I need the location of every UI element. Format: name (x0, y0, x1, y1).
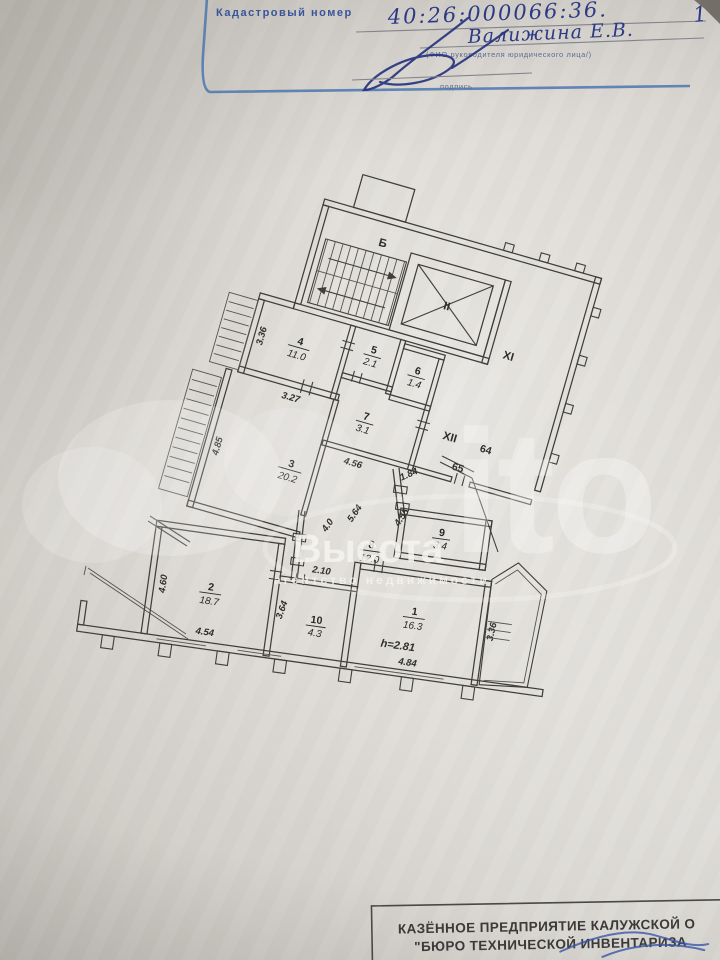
document-canvas: Кадастровый номер 40:26:000066:36. 1 Вал… (0, 0, 720, 960)
scanned-document-photo: Кадастровый номер 40:26:000066:36. 1 Вал… (0, 0, 720, 960)
hall-label: XI (501, 349, 515, 364)
balcony-room4 (209, 292, 258, 369)
svg-text:7: 7 (362, 410, 371, 423)
pilaster (158, 643, 172, 658)
avito-watermark-blob (224, 408, 356, 516)
door-mark (340, 340, 354, 350)
roof-tab (354, 175, 415, 223)
watermarks: ito Высота агентство недвижимости (22, 395, 675, 600)
door-mark (415, 420, 429, 430)
room5-bottom-wall (341, 373, 392, 392)
pilaster (215, 651, 229, 666)
svg-text:1.4: 1.4 (406, 377, 423, 392)
stairs-icon (308, 239, 407, 326)
svg-text:3.1: 3.1 (354, 423, 370, 437)
room-4-label: 4 11.0 (284, 333, 312, 364)
footer-block: КАЗЁННОЕ ПРЕДПРИЯТИЕ КАЛУЖСКОЙ О "БЮРО Т… (371, 900, 720, 960)
room-1-label: 1 16.3 (401, 605, 426, 634)
pilaster (273, 659, 287, 674)
stair-bottom-wall (293, 303, 489, 364)
svg-text:10: 10 (310, 614, 323, 628)
svg-text:5: 5 (369, 344, 378, 357)
svg-text:2: 2 (207, 581, 215, 594)
dim-room4-bottom: 3.27 (280, 390, 301, 406)
dim-landing: 1.84 (398, 466, 420, 484)
room-10-label: 10 4.3 (304, 613, 327, 641)
header-stamp-area: Кадастровый номер 40:26:000066:36. 1 Вал… (203, 0, 720, 92)
svg-text:18.7: 18.7 (199, 595, 220, 609)
avito-watermark-text: ito (452, 395, 654, 590)
agency-watermark: Высота (293, 527, 444, 571)
cadastral-label: Кадастровый номер (216, 7, 353, 19)
stairs-label: Б (377, 237, 388, 251)
balcony-hatch (214, 302, 254, 361)
room-2-label: 2 18.7 (197, 580, 222, 609)
dim-room2-left: 4.60 (157, 573, 171, 595)
top-outer-wall (323, 199, 601, 284)
dim-room1-bottom: 4.84 (397, 656, 419, 670)
room-5-label: 5 2.1 (360, 342, 384, 371)
pilaster (461, 685, 475, 700)
footer-line2: "БЮРО ТЕХНИЧЕСКОЙ ИНВЕНТАРИЗА (414, 934, 687, 954)
ceiling-height: h=2.81 (380, 638, 416, 655)
svg-text:1: 1 (411, 606, 419, 619)
svg-text:16.3: 16.3 (402, 620, 423, 634)
svg-text:4.3: 4.3 (307, 627, 323, 640)
svg-text:2.1: 2.1 (361, 356, 378, 371)
room-6-label: 6 1.4 (404, 363, 428, 392)
svg-text:11.0: 11.0 (286, 348, 307, 364)
agency-watermark-sub: агентство недвижимости (274, 573, 490, 587)
room4-right-wall (330, 325, 356, 399)
site-boundary-line (84, 566, 188, 639)
pilaster (338, 668, 352, 683)
pilaster (101, 635, 115, 650)
avito-watermark-blob (22, 447, 162, 563)
svg-text:6: 6 (413, 365, 422, 378)
dim-room2-bottom: 4.54 (194, 626, 216, 640)
elevator-label: II (442, 300, 451, 313)
signature-caption: подпись (440, 82, 473, 91)
pilaster (400, 677, 414, 692)
room-7-label: 7 3.1 (352, 409, 376, 438)
svg-text:4: 4 (296, 335, 305, 348)
